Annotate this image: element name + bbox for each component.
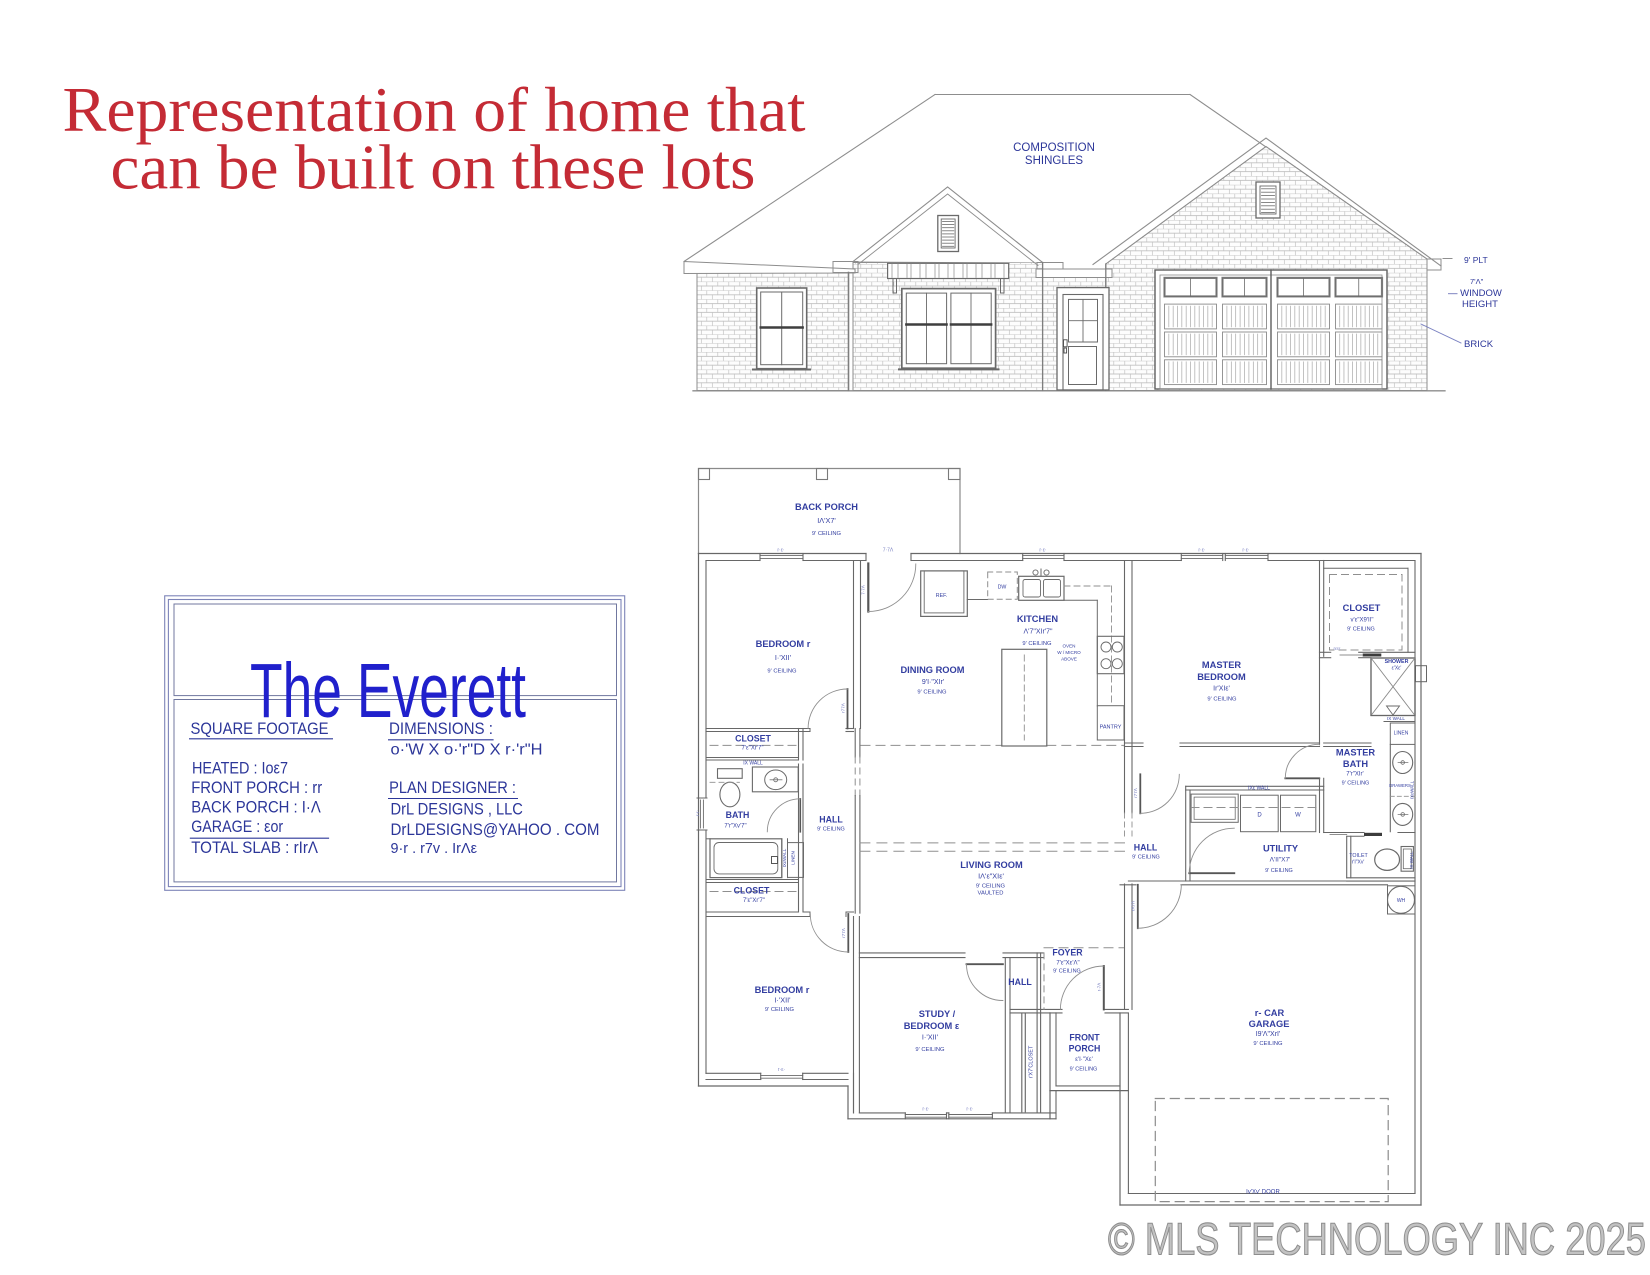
svg-text:7'ε"Xr'7": 7'ε"Xr'7" xyxy=(743,898,765,904)
svg-text:HALL: HALL xyxy=(1134,843,1158,853)
svg-text:STUDY /: STUDY / xyxy=(919,1009,956,1019)
svg-text:SHOWER: SHOWER xyxy=(1385,659,1409,665)
svg-text:LINEN: LINEN xyxy=(791,851,796,865)
svg-text:9' PLT: 9' PLT xyxy=(1464,255,1488,265)
svg-text:r'X7'CLOSET: r'X7'CLOSET xyxy=(1029,1045,1035,1078)
svg-text:SHINGLES: SHINGLES xyxy=(1025,155,1083,167)
svg-text:CLOSET: CLOSET xyxy=(1343,603,1381,613)
svg-text:CLOSET: CLOSET xyxy=(734,886,770,896)
svg-text:BEDROOM r: BEDROOM r xyxy=(756,639,811,649)
svg-text:9' CEILING: 9' CEILING xyxy=(765,1007,795,1013)
svg-text:FRONT PORCH : rr: FRONT PORCH : rr xyxy=(191,778,322,797)
svg-text:VAULTED: VAULTED xyxy=(978,891,1004,897)
svg-text:9' CEILING: 9' CEILING xyxy=(812,531,842,537)
svg-text:LINEN: LINEN xyxy=(1394,731,1409,737)
svg-text:7'r"XΙr': 7'r"XΙr' xyxy=(1346,772,1363,778)
svg-text:LIVING ROOM: LIVING ROOM xyxy=(960,860,1023,870)
svg-text:9' CEILING: 9' CEILING xyxy=(1347,627,1375,633)
svg-text:BRICK: BRICK xyxy=(1464,339,1494,350)
svg-text:9' CEILING: 9' CEILING xyxy=(915,1047,945,1053)
svg-text:DrLDESIGNS@YAHOO . COM: DrLDESIGNS@YAHOO . COM xyxy=(391,820,600,839)
svg-text:BACK PORCH: BACK PORCH xyxy=(795,502,858,512)
svg-text:PORCH: PORCH xyxy=(1069,1044,1101,1054)
svg-text:rεrε: rεrε xyxy=(1333,646,1340,651)
svg-text:DRAWERS: DRAWERS xyxy=(1389,783,1411,788)
svg-text:r77Λ: r77Λ xyxy=(841,928,846,938)
svg-text:r·ε·: r·ε· xyxy=(922,1107,930,1113)
svg-text:r·r·: r·r· xyxy=(695,810,700,816)
svg-text:r·ε·: r·ε· xyxy=(777,548,785,554)
svg-text:rΛ7Λ: rΛ7Λ xyxy=(1131,901,1136,911)
svg-text:9' CEILING: 9' CEILING xyxy=(1253,1041,1283,1047)
svg-text:r·ε·: r·ε· xyxy=(1198,548,1206,554)
svg-text:9' CEILING: 9' CEILING xyxy=(1265,868,1293,874)
svg-text:MASTER: MASTER xyxy=(1202,660,1242,670)
svg-text:9' CEILING: 9' CEILING xyxy=(976,884,1006,890)
svg-text:ABOVE: ABOVE xyxy=(1061,657,1077,662)
svg-text:W / MICRO: W / MICRO xyxy=(1057,650,1081,655)
svg-text:BATH: BATH xyxy=(726,810,750,820)
svg-text:COMPOSITION: COMPOSITION xyxy=(1013,142,1095,154)
svg-text:ε'Ι·"Xε': ε'Ι·"Xε' xyxy=(1075,1057,1092,1063)
svg-text:BATH: BATH xyxy=(1343,759,1368,769)
svg-text:PLAN DESIGNER :: PLAN DESIGNER : xyxy=(389,778,516,797)
svg-text:Ιr'XΙε': Ιr'XΙε' xyxy=(1213,686,1230,693)
svg-text:can be built on these lots: can be built on these lots xyxy=(111,132,756,203)
svg-text:9' CEILING: 9' CEILING xyxy=(817,827,845,833)
svg-text:BEDROOM r: BEDROOM r xyxy=(755,985,810,995)
svg-text:9' CEILING: 9' CEILING xyxy=(1053,969,1081,975)
svg-text:ΙΛ'X7': ΙΛ'X7' xyxy=(817,516,836,525)
svg-text:Λ'7"XΙr'7": Λ'7"XΙr'7" xyxy=(1023,629,1053,636)
svg-text:REF.: REF. xyxy=(936,593,947,599)
svg-text:D: D xyxy=(1257,813,1262,819)
svg-text:ΙX WALL: ΙX WALL xyxy=(1409,851,1414,869)
svg-text:ΙXεWALL: ΙXεWALL xyxy=(782,848,787,867)
svg-text:DINING ROOM: DINING ROOM xyxy=(900,665,964,675)
svg-text:DIMENSIONS :: DIMENSIONS : xyxy=(389,719,493,738)
svg-text:CLOSET: CLOSET xyxy=(735,734,771,744)
svg-text:9' CEILING: 9' CEILING xyxy=(1070,1067,1098,1073)
svg-text:OVEN: OVEN xyxy=(1062,644,1075,649)
svg-text:HEATED : Ιoε7: HEATED : Ιoε7 xyxy=(192,759,288,778)
svg-text:7'Λ": 7'Λ" xyxy=(1470,277,1484,286)
svg-text:KITCHEN: KITCHEN xyxy=(1017,614,1059,624)
svg-text:9' CEILING: 9' CEILING xyxy=(1207,697,1237,703)
svg-text:GARAGE: GARAGE xyxy=(1249,1019,1290,1029)
svg-text:Ι·'XΙΙ': Ι·'XΙΙ' xyxy=(774,996,791,1005)
svg-text:r77Λ: r77Λ xyxy=(1133,788,1138,798)
svg-text:HEIGHT: HEIGHT xyxy=(1462,299,1498,310)
svg-text:ΙΛ'ε"XΙε': ΙΛ'ε"XΙε' xyxy=(978,872,1004,881)
svg-text:UTILITY: UTILITY xyxy=(1263,844,1299,854)
svg-text:Ιv'Xv' DOOR: Ιv'Xv' DOOR xyxy=(1246,1190,1280,1196)
svg-text:ε'Xε': ε'Xε' xyxy=(1392,666,1402,672)
svg-text:ΙXε WALL: ΙXε WALL xyxy=(1248,785,1270,791)
svg-text:MASTER: MASTER xyxy=(1336,748,1376,758)
svg-text:r·ε·: r·ε· xyxy=(1039,548,1047,554)
svg-text:— WINDOW: — WINDOW xyxy=(1448,288,1502,299)
svg-text:9' CEILING: 9' CEILING xyxy=(1342,781,1370,787)
svg-text:TOTAL SLAB : rΙrΛ: TOTAL SLAB : rΙrΛ xyxy=(191,838,318,857)
svg-text:v'ε"X9'ΙΙ": v'ε"X9'ΙΙ" xyxy=(1351,618,1374,624)
svg-text:7'ε"Xr'7": 7'ε"Xr'7" xyxy=(742,746,764,752)
svg-text:© MLS TECHNOLOGY INC 2025: © MLS TECHNOLOGY INC 2025 xyxy=(1108,1214,1646,1265)
svg-text:FRONT: FRONT xyxy=(1069,1033,1100,1043)
svg-text:BEDROOM ε: BEDROOM ε xyxy=(904,1021,960,1031)
svg-text:HALL: HALL xyxy=(1008,977,1032,987)
svg-text:Ι9'Λ"XrΙ': Ι9'Λ"XrΙ' xyxy=(1256,1031,1281,1038)
svg-text:9·r . r7v . ΙrΛε: 9·r . r7v . ΙrΛε xyxy=(391,840,478,857)
svg-text:9' CEILING: 9' CEILING xyxy=(767,669,797,675)
svg-text:SQUARE FOOTAGE: SQUARE FOOTAGE xyxy=(191,719,329,738)
svg-text:DrL DESIGNS , LLC: DrL DESIGNS , LLC xyxy=(391,800,523,819)
svg-text:Ι·'XΙΙ': Ι·'XΙΙ' xyxy=(775,653,792,662)
svg-text:7·7Λ: 7·7Λ xyxy=(883,548,894,554)
svg-text:o·'W X o·'r"D X r·'r"H: o·'W X o·'r"D X r·'r"H xyxy=(391,742,543,759)
svg-text:r·ε·: r·ε· xyxy=(1242,548,1250,554)
svg-text:Ι·'XΙΙ': Ι·'XΙΙ' xyxy=(922,1033,939,1042)
svg-text:PANTRY: PANTRY xyxy=(1100,725,1122,731)
svg-text:BEDROOM: BEDROOM xyxy=(1197,672,1246,682)
svg-text:GARAGE : εor: GARAGE : εor xyxy=(191,817,283,836)
svg-text:r·ε·: r·ε· xyxy=(778,1067,786,1073)
svg-text:ΙX WALL: ΙX WALL xyxy=(743,761,763,767)
svg-text:7'ε"Xε'Λ": 7'ε"Xε'Λ" xyxy=(1056,961,1079,967)
svg-text:BACK PORCH : Ι·Λ: BACK PORCH : Ι·Λ xyxy=(191,798,321,817)
svg-text:r·7Λ: r·7Λ xyxy=(1097,983,1102,992)
svg-text:WH: WH xyxy=(1397,898,1406,904)
svg-text:TOILET: TOILET xyxy=(1349,853,1368,859)
svg-text:HALL: HALL xyxy=(819,815,843,825)
svg-text:7'r"Xv'7": 7'r"Xv'7" xyxy=(724,824,746,830)
svg-text:r'Ι"Xv': r'Ι"Xv' xyxy=(1352,860,1365,866)
svg-text:Λ'ΙΙ"X7': Λ'ΙΙ"X7' xyxy=(1270,857,1291,864)
svg-text:ΙX WALL: ΙX WALL xyxy=(1387,716,1405,721)
svg-text:r·ε·: r·ε· xyxy=(966,1107,974,1113)
svg-text:9'Ι·"XΙr': 9'Ι·"XΙr' xyxy=(922,679,944,686)
svg-text:r- CAR: r- CAR xyxy=(1255,1008,1285,1018)
svg-text:r77Λ: r77Λ xyxy=(841,703,846,713)
svg-text:9' CEILING: 9' CEILING xyxy=(1132,855,1160,861)
svg-text:DW: DW xyxy=(998,585,1007,591)
svg-text:9' CEILING: 9' CEILING xyxy=(917,690,947,696)
svg-text:FOYER: FOYER xyxy=(1052,948,1083,958)
svg-text:9' CEILING: 9' CEILING xyxy=(1022,641,1052,647)
svg-text:ΙXεWALL: ΙXεWALL xyxy=(1410,780,1415,799)
svg-text:W: W xyxy=(1295,813,1301,819)
svg-text:7·7Λ: 7·7Λ xyxy=(861,585,866,595)
